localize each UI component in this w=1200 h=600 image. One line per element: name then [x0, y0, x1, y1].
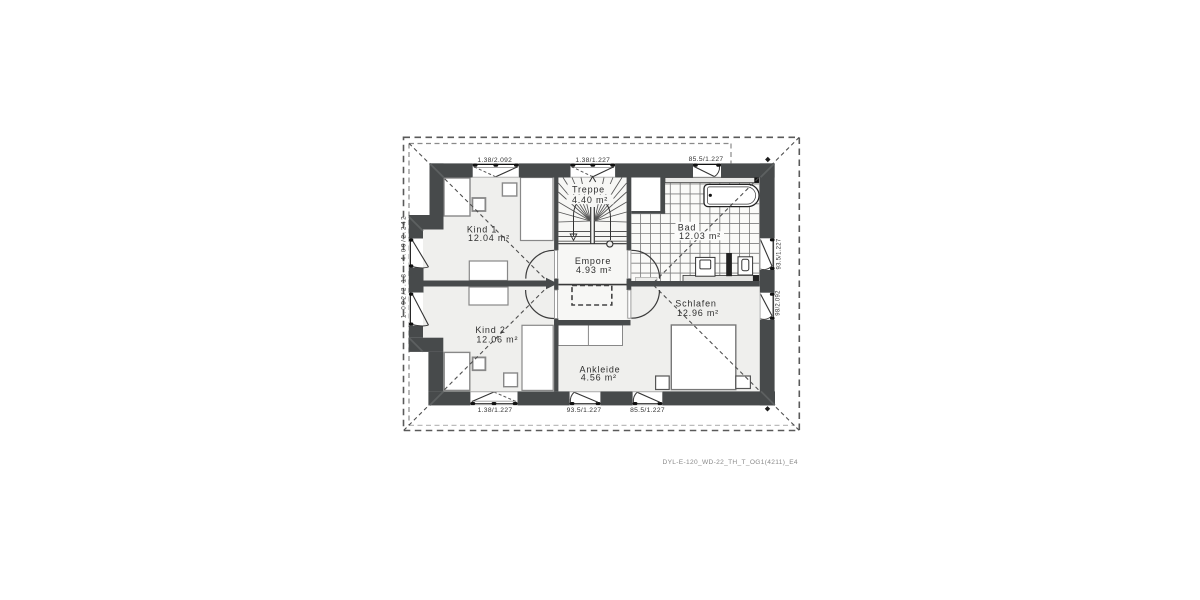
- svg-text:Schlafen: Schlafen: [675, 298, 716, 308]
- svg-text:Treppe: Treppe: [572, 184, 605, 194]
- svg-text:93.5/1.227: 93.5/1.227: [567, 407, 602, 414]
- svg-text:12.96 m²: 12.96 m²: [677, 308, 719, 318]
- svg-text:93.5/1.227: 93.5/1.227: [776, 238, 782, 269]
- svg-text:12.04 m²: 12.04 m²: [468, 233, 510, 243]
- svg-text:12.03 m²: 12.03 m²: [679, 231, 721, 241]
- svg-text:1.38/2.092: 1.38/2.092: [477, 157, 512, 164]
- svg-text:1.38/1.227: 1.38/1.227: [478, 407, 513, 414]
- svg-text:-4.09/2.242: -4.09/2.242: [400, 215, 407, 264]
- svg-text:4.56 m²: 4.56 m²: [581, 372, 617, 382]
- svg-text:1.38/1.227: 1.38/1.227: [575, 157, 610, 164]
- svg-text:1.092/2.18-: 1.092/2.18-: [400, 269, 407, 318]
- svg-text:98/2.092: 98/2.092: [775, 290, 781, 316]
- svg-text:85.5/1.227: 85.5/1.227: [630, 407, 665, 414]
- svg-text:85.5/1.227: 85.5/1.227: [689, 156, 724, 163]
- svg-text:12.06 m²: 12.06 m²: [476, 334, 518, 344]
- svg-text:DYL-E-120_WD-22_TH_T_OG1(4211): DYL-E-120_WD-22_TH_T_OG1(4211)_E4: [663, 459, 798, 466]
- svg-text:4.40 m²: 4.40 m²: [572, 195, 608, 205]
- svg-text:4.93 m²: 4.93 m²: [576, 265, 612, 275]
